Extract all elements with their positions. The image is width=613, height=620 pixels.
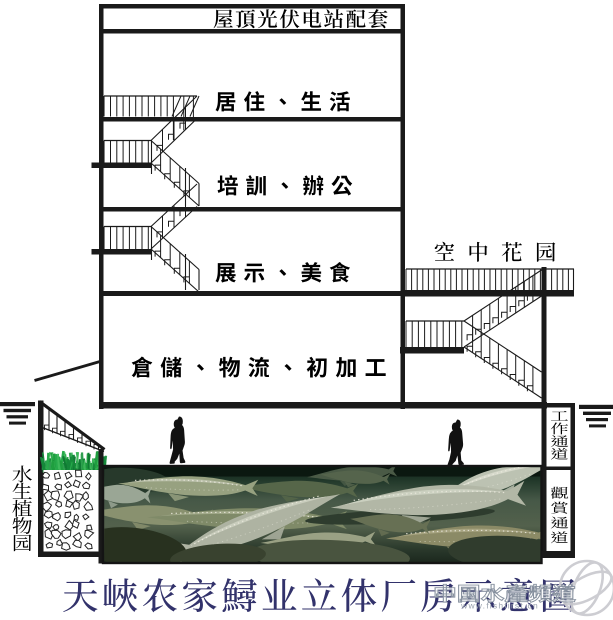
svg-text:www.fishfirst.cn: www.fishfirst.cn	[460, 601, 539, 611]
